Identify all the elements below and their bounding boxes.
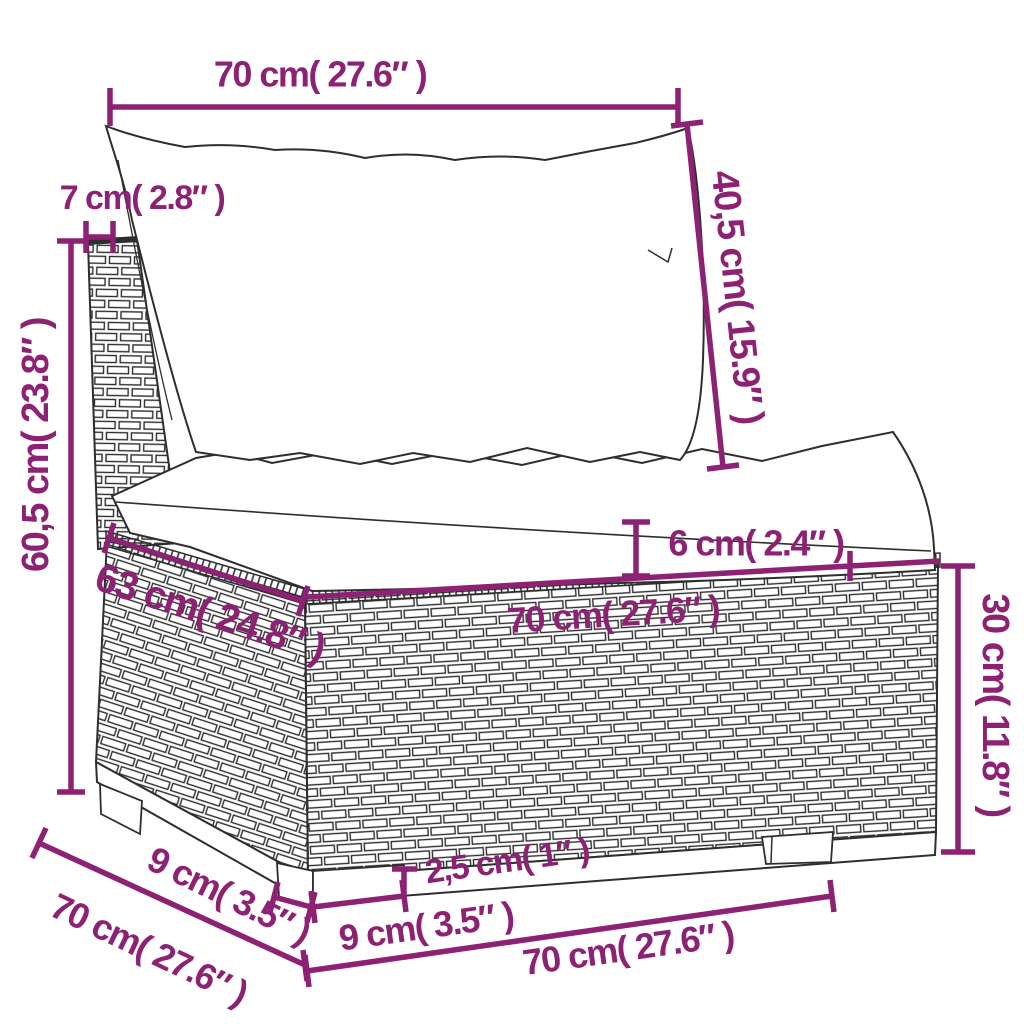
dimension-label-base-height: 30 cm( 11.8″ ) xyxy=(974,593,1016,816)
dimension-line-base-height xyxy=(941,566,975,852)
product-dimension-diagram: 70 cm( 27.6″ ) 7 cm( 2.8″ ) 60,5 cm( 23.… xyxy=(0,0,1024,1024)
dimension-label-seat-cushion-thickness: 6 cm( 2.4″ ) xyxy=(668,523,844,564)
dimension-label-overall-height: 60,5 cm( 23.8″ ) xyxy=(15,318,57,572)
sofa-line-drawing xyxy=(86,126,940,908)
dimension-line-overall-height xyxy=(57,241,85,792)
back-cushion-outline xyxy=(106,126,704,464)
dimension-label-back-cushion-width: 70 cm( 27.6″ ) xyxy=(214,54,427,95)
sofa-dimension-drawing: 70 cm( 27.6″ ) 7 cm( 2.8″ ) 60,5 cm( 23.… xyxy=(0,0,1024,1024)
dimension-label-frame-top-depth: 7 cm( 2.8″ ) xyxy=(60,179,225,217)
sofa-leg-right-edge xyxy=(771,836,772,863)
